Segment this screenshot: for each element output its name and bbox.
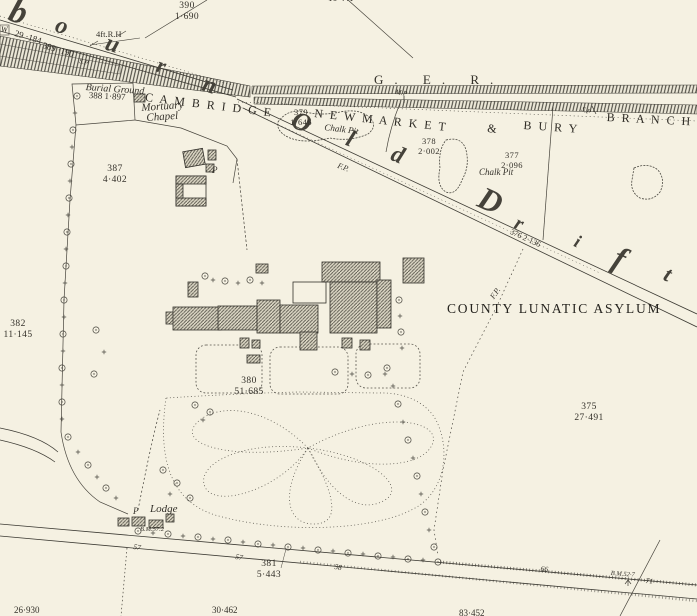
parcel-382-area: 11·145 <box>0 330 36 341</box>
spot-level-3: 58 <box>334 563 343 572</box>
airing-court-center <box>270 347 348 394</box>
lodge-building-1 <box>118 518 129 526</box>
airing-court-east <box>356 344 420 388</box>
farm-building-1 <box>183 148 205 167</box>
parcel-381-area: 5·443 <box>249 570 289 581</box>
parcel-375-area: 27·491 <box>566 413 612 424</box>
asylum-east-wing <box>377 280 391 328</box>
parcel-379-area: 1·646 <box>286 117 316 127</box>
asylum-center-west-block <box>257 300 280 333</box>
parcel-378-area: 2·002 <box>414 146 444 156</box>
parcel-380-label: 380 51·685 <box>228 376 270 398</box>
area-southwest-label: 26·930 <box>14 606 40 616</box>
spot-level-4: 66 <box>540 565 548 574</box>
parcel-387-number: 387 <box>96 164 134 175</box>
petal-path-se <box>308 448 392 505</box>
parcel-390-label: 390 1·690 <box>168 1 206 23</box>
parcel-390-area: 1·690 <box>168 12 206 23</box>
lodge-building-2 <box>132 517 145 526</box>
asylum-northwest-annex <box>188 282 198 297</box>
pump-lodge-label: P <box>133 507 139 517</box>
parcel-387-area: 4·402 <box>96 175 134 186</box>
grounds-group <box>164 344 444 528</box>
parcel-top-partial-label: 16·441 <box>328 0 354 4</box>
petal-path-s <box>290 448 332 524</box>
area-south-label: 30·462 <box>212 606 238 616</box>
asylum-west-range <box>218 306 258 330</box>
asylum-northeast-block <box>403 258 424 283</box>
parcel-378-label: 378 2·002 <box>414 136 444 156</box>
asylum-north-range <box>322 262 380 282</box>
parcel-380-area: 51·685 <box>228 387 270 398</box>
buildings-group <box>118 94 424 528</box>
parcel-381-number: 381 <box>249 559 289 570</box>
spot-level-5: 71 <box>645 577 653 586</box>
farm-range-west <box>176 184 183 198</box>
parcel-375-label: 375 27·491 <box>566 402 612 424</box>
asylum-west-wing <box>173 307 221 330</box>
railway-name-ampersand: & <box>487 122 500 136</box>
rail-height-label: 4ft.R.H <box>96 30 122 39</box>
outbuilding-s2 <box>252 340 260 348</box>
lodge-building-4 <box>166 514 174 522</box>
os-map-county-lunatic-asylum: b o u r n O l d D r i f t G. E. R. C A M… <box>0 0 697 616</box>
asylum-center-block <box>280 305 318 333</box>
asylum-east-block <box>330 282 377 333</box>
farm-building-3 <box>208 150 216 160</box>
parcel-382-number: 382 <box>0 319 36 330</box>
benchmark-lodge-label: B.M.57.2 <box>140 526 164 533</box>
farm-track <box>237 159 247 250</box>
pump-north-label: P <box>212 166 218 176</box>
asylum-east-boundary <box>434 249 523 556</box>
grounds-outer-loop <box>164 392 444 528</box>
parcel-375-number: 375 <box>566 402 612 413</box>
asylum-courtyard <box>293 282 326 303</box>
asylum-north-annex <box>256 264 268 273</box>
asylum-south-bay <box>300 332 317 350</box>
lodge-label: Lodge <box>150 503 178 515</box>
outbuilding-s1 <box>240 338 249 348</box>
west-lane <box>0 428 58 462</box>
parcel-381-label: 381 5·443 <box>249 559 289 581</box>
outbuilding-s3 <box>342 338 352 348</box>
chapel-label: Chapel <box>146 110 179 124</box>
parcel-379-number: 379 <box>286 107 316 117</box>
parcel-378-number: 378 <box>414 136 444 146</box>
chalk-pit-far-east-outline <box>632 165 663 199</box>
lodge-drive <box>138 410 160 510</box>
farm-range-south <box>176 198 206 206</box>
south-road-edge1 <box>0 524 697 585</box>
boundary-top <box>348 0 413 58</box>
spot-level-2: 57 <box>235 553 244 562</box>
parcel-377-area: 2·096 <box>497 160 527 170</box>
south-road-edge2 <box>0 536 697 599</box>
benchmark-arrow <box>625 580 631 586</box>
outbuilding-s4 <box>360 340 370 350</box>
petal-path-nw <box>192 411 308 453</box>
south-field-boundary <box>121 548 127 616</box>
parcel-390-number: 390 <box>168 1 206 12</box>
parcel-377-label: 377 2·096 <box>497 150 527 170</box>
spot-level-1: 57 <box>133 543 142 552</box>
parcel-380-number: 380 <box>228 376 270 387</box>
area-southeast-label: 83·452 <box>459 609 485 616</box>
well-label: W <box>1 26 8 35</box>
county-lunatic-asylum-title: COUNTY LUNATIC ASYLUM <box>447 302 661 317</box>
outbuilding-s5 <box>247 355 260 363</box>
petal-path-sw <box>204 446 308 496</box>
parcel-388-label: 388 1·897 <box>88 91 125 103</box>
parcel-377-number: 377 <box>497 150 527 160</box>
railway-company-label: G. E. R. <box>374 73 504 87</box>
farm-range-north <box>176 176 206 184</box>
parcel-382-label: 382 11·145 <box>0 319 36 341</box>
parcel-387-label: 387 4·402 <box>96 164 134 186</box>
parcel-379-label: 379 1·646 <box>286 107 316 127</box>
